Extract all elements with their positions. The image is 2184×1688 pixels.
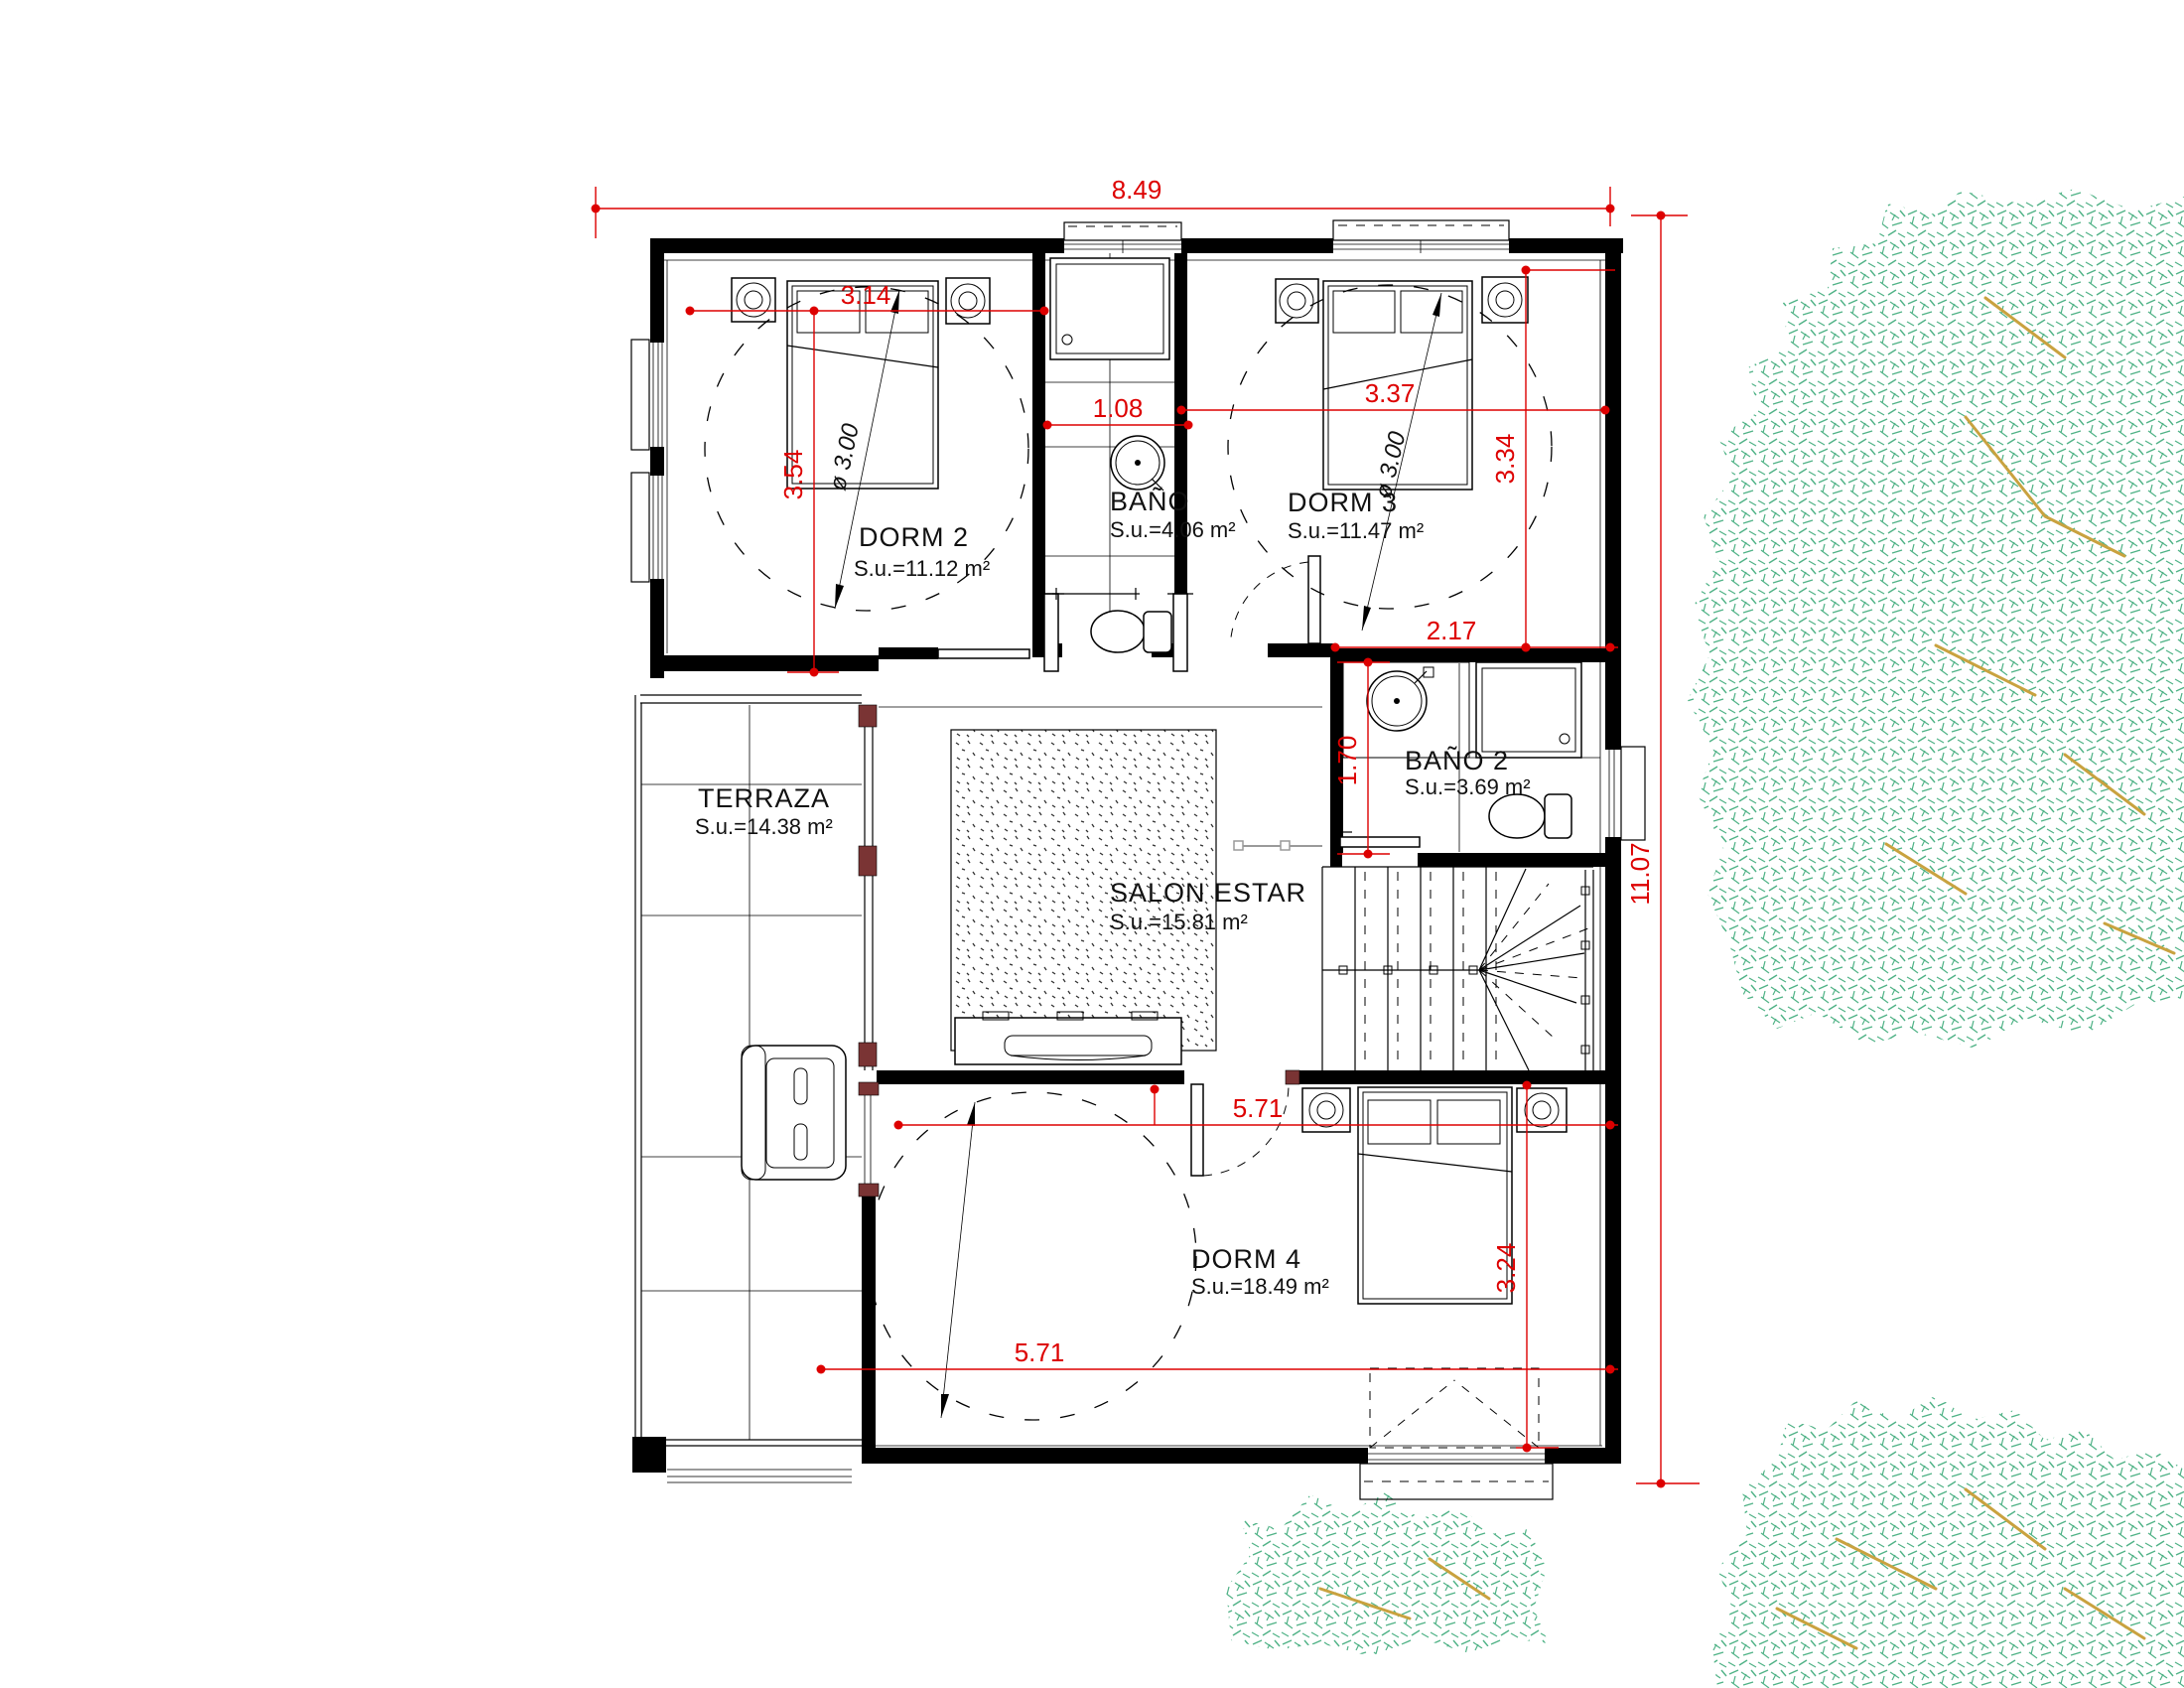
towel-bar-icon — [1052, 588, 1140, 600]
toilet-icon — [1489, 794, 1571, 838]
nightstand-icon — [1482, 277, 1528, 323]
dim-label: 1.70 — [1332, 736, 1362, 786]
wardrobe-dorm4 — [1370, 1368, 1539, 1448]
dim-label: 3.24 — [1491, 1243, 1521, 1294]
dimension-overall-width: 8.49 — [592, 175, 1615, 238]
dim-label: 3.54 — [778, 450, 808, 500]
nightstand-icon — [946, 278, 990, 324]
dim-label: 11.07 — [1625, 842, 1655, 905]
floor-plan-drawing: ø 3.00 ø 3.00 8.49 11.07 3.14 — [0, 0, 2184, 1688]
window-right-bano2 — [1605, 747, 1645, 840]
dimension-dorm3-height: 3.34 — [1490, 266, 1615, 652]
dim-label: 8.49 — [1112, 175, 1162, 205]
sliding-door-terraza — [859, 705, 877, 1070]
room-label-salon: SALON ESTAR S.u.=15.81 m² — [1110, 878, 1306, 934]
room-name: BAÑO — [1110, 486, 1190, 516]
room-name: BAÑO 2 — [1405, 745, 1509, 775]
tv-console-icon — [955, 1012, 1181, 1064]
window-left-lower — [631, 473, 664, 582]
room-name: TERRAZA — [698, 783, 830, 813]
dim-label: 3.37 — [1365, 378, 1416, 408]
door-dorm4 — [1184, 1070, 1299, 1176]
room-label-bano: BAÑO S.u.=4.06 m² — [1110, 486, 1236, 542]
room-area: S.u.=15.81 m² — [1110, 910, 1248, 934]
room-area: S.u.=11.47 m² — [1288, 518, 1424, 543]
window-top-dorm3 — [1333, 220, 1509, 253]
tree-icon-bottom-right — [1712, 1395, 2184, 1688]
toilet-icon — [1091, 611, 1171, 652]
nightstand-icon — [1276, 279, 1318, 323]
room-area: S.u.=14.38 m² — [695, 814, 833, 839]
window-top-bano — [1064, 222, 1181, 253]
nightstand-icon — [732, 278, 775, 322]
door-dorm4-left — [859, 1082, 879, 1196]
window-bottom-dorm4 — [1360, 1448, 1553, 1499]
dim-label: 2.17 — [1427, 616, 1477, 645]
armchair-icon — [742, 1046, 846, 1180]
stairs — [1234, 841, 1593, 1070]
tree-icon-bottom-center — [1226, 1489, 1549, 1656]
dim-label: 3.34 — [1490, 434, 1520, 485]
room-label-dorm3: DORM 3 S.u.=11.47 m² — [1288, 488, 1424, 543]
room-label-dorm4: DORM 4 S.u.=18.49 m² — [1191, 1244, 1329, 1299]
dimension-bano2-width: 2.17 — [1331, 616, 1619, 652]
dimension-overall-height: 11.07 — [1625, 211, 1700, 1488]
floor-plan: ø 3.00 ø 3.00 8.49 11.07 3.14 — [0, 0, 2184, 1688]
room-area: S.u.=4.06 m² — [1110, 517, 1236, 542]
dim-label: 5.71 — [1015, 1337, 1065, 1367]
room-area: S.u.=3.69 m² — [1405, 774, 1531, 799]
bano-fixtures — [1045, 253, 1174, 652]
stair-treads — [1355, 867, 1496, 1070]
room-name: DORM 4 — [1191, 1244, 1301, 1274]
room-label-dorm2: DORM 2 S.u.=11.12 m² — [854, 522, 990, 581]
dim-label: 1.08 — [1093, 393, 1144, 423]
sink-icon — [1111, 436, 1164, 491]
window-left-upper — [631, 340, 664, 450]
stair-rail — [1234, 841, 1593, 1070]
door-dorm2 — [938, 649, 1029, 658]
dimension-bano-width: 1.08 — [1043, 393, 1193, 430]
dim-label: 5.71 — [1233, 1093, 1284, 1123]
tree-icon-top-right — [1688, 189, 2184, 1049]
room-name: SALON ESTAR — [1110, 878, 1306, 908]
terraza-corner-post — [632, 1437, 666, 1473]
door-bano2 — [1340, 832, 1420, 867]
shower-icon — [1476, 662, 1581, 758]
shower-icon — [1050, 258, 1169, 359]
room-area: S.u.=11.12 m² — [854, 556, 990, 581]
room-name: DORM 2 — [859, 522, 969, 552]
sink-icon — [1343, 662, 1469, 758]
room-label-terraza: TERRAZA S.u.=14.38 m² — [695, 783, 833, 839]
turning-circle-dorm4 — [869, 1092, 1196, 1420]
room-area: S.u.=18.49 m² — [1191, 1274, 1329, 1299]
room-name: DORM 3 — [1288, 488, 1398, 517]
dim-label: 3.14 — [841, 280, 891, 310]
